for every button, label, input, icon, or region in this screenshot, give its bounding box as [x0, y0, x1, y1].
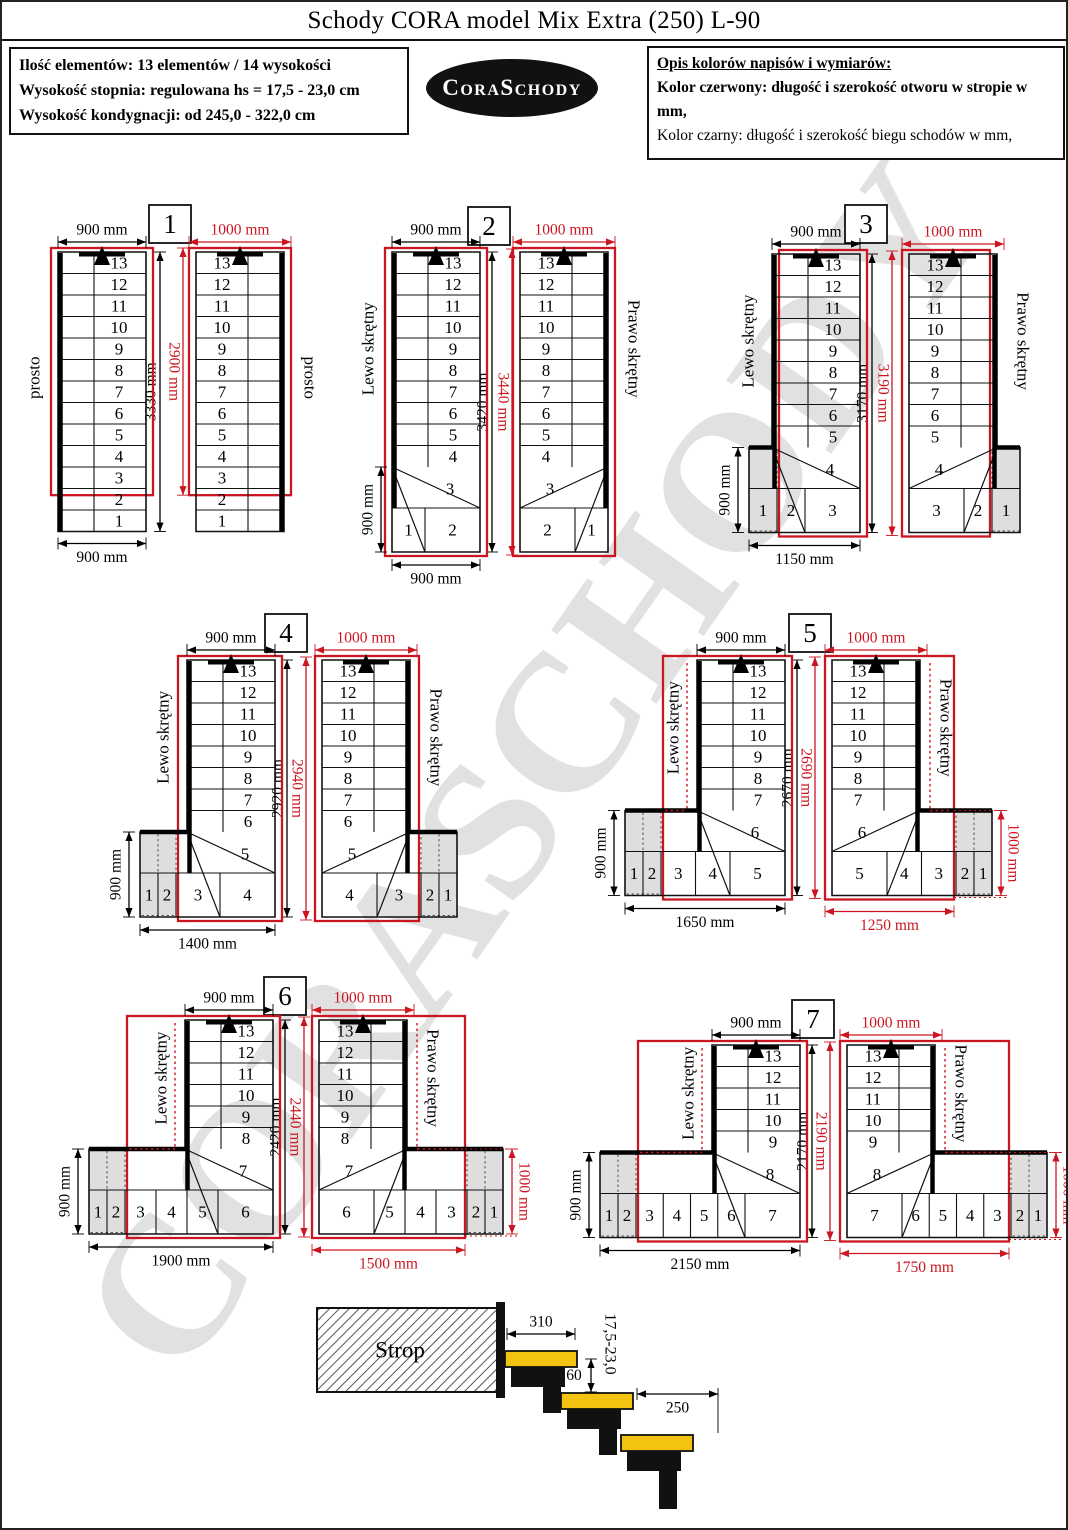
- step-post: [543, 1367, 561, 1413]
- dim-arrowhead: [1052, 1229, 1059, 1238]
- dim-label: 900 mm: [76, 222, 127, 239]
- step-number: 12: [111, 275, 128, 294]
- dim-arrowhead: [125, 832, 132, 841]
- dim-arrowhead: [471, 561, 480, 568]
- step-number: 12: [538, 275, 555, 294]
- step-number: 6: [344, 812, 353, 831]
- step-number: 9: [218, 339, 227, 358]
- side-label: Prawo skrętny: [424, 1029, 443, 1127]
- stair-outline: [196, 252, 284, 532]
- step-number: 2: [648, 864, 657, 883]
- step-number: 2: [472, 1203, 481, 1222]
- step-post: [599, 1409, 617, 1455]
- dim-arrowhead: [300, 1017, 307, 1026]
- step-number: 7: [218, 382, 227, 401]
- dim-arrowhead: [610, 887, 617, 896]
- step-number: 9: [754, 747, 763, 766]
- dim-label: 1650 mm: [676, 914, 735, 931]
- dim-arrowhead: [868, 524, 875, 533]
- step-number: 1: [444, 886, 453, 905]
- dim-arrowhead: [697, 646, 706, 653]
- dim-label: 310: [529, 1314, 553, 1331]
- step-number: 11: [825, 298, 841, 317]
- dim-arrowhead: [125, 908, 132, 917]
- dim-arrowhead: [302, 911, 309, 920]
- dim-arrowhead: [300, 1228, 307, 1237]
- dim-arrowhead: [918, 646, 927, 653]
- step-number: 4: [115, 447, 124, 466]
- dim-arrowhead: [945, 908, 954, 915]
- step-number: 10: [765, 1111, 782, 1130]
- step-number: 9: [769, 1132, 778, 1151]
- step-number: 5: [542, 425, 551, 444]
- logo-text: CoraSchody: [442, 75, 582, 101]
- step-number: 9: [244, 747, 253, 766]
- step-number: 10: [337, 1086, 354, 1105]
- dim-arrowhead: [587, 1359, 594, 1368]
- step-number: 4: [416, 1203, 425, 1222]
- dim-arrowhead: [734, 448, 741, 457]
- step-number: 5: [855, 864, 864, 883]
- diagram-1: 13330 mm2900 mm: [143, 205, 192, 532]
- info-line-elements: Ilość elementów: 13 elementów / 14 wysok…: [19, 54, 399, 79]
- step-number: 1: [979, 864, 988, 883]
- dim-arrowhead: [600, 1247, 609, 1254]
- step-number: 8: [218, 361, 227, 380]
- strop-label: Strop: [375, 1338, 425, 1363]
- dim-label: 1750 mm: [895, 1259, 954, 1276]
- step-number: 10: [111, 318, 128, 337]
- stair-outline: [58, 252, 146, 532]
- step-number: 7: [829, 384, 838, 403]
- dim-arrowhead: [625, 905, 634, 912]
- step-number: 11: [240, 704, 256, 723]
- step-number: 4: [966, 1206, 975, 1225]
- step-number: 5: [385, 1203, 394, 1222]
- step-number: 11: [111, 296, 127, 315]
- step-number: 1: [630, 864, 639, 883]
- dim-arrowhead: [508, 1149, 515, 1158]
- dim-arrowhead: [888, 251, 895, 260]
- dim-arrowhead: [808, 1229, 815, 1238]
- dim-arrowhead: [488, 252, 495, 261]
- step-number: 4: [900, 864, 909, 883]
- step-number: 10: [927, 320, 944, 339]
- dim-label: 3190 mm: [875, 364, 892, 423]
- info-box: Ilość elementów: 13 elementów / 14 wysok…: [9, 47, 409, 135]
- step-number: 9: [242, 1107, 251, 1126]
- step-number: 7: [244, 790, 253, 809]
- step-number: 4: [709, 864, 718, 883]
- dim-label: 900 mm: [410, 222, 461, 239]
- dim-arrowhead: [89, 1243, 98, 1250]
- step-number: 2: [961, 864, 970, 883]
- step-number: 9: [869, 1132, 878, 1151]
- side-label: Lewo skrętny: [739, 294, 758, 388]
- step-number: 1: [404, 521, 413, 540]
- dim-arrowhead: [840, 1031, 849, 1038]
- side-label: Lewo skrętny: [679, 1046, 698, 1140]
- step-number: 7: [768, 1206, 777, 1225]
- dim-arrowhead: [851, 542, 860, 549]
- step-number: 4: [542, 447, 551, 466]
- step-number: 11: [750, 704, 766, 723]
- dim-arrowhead: [507, 1330, 516, 1337]
- dim-arrowhead: [826, 1042, 833, 1051]
- diagram-5-stair-left: 13121110987123456Lewo skrętny900 mm900 m…: [593, 630, 793, 932]
- step-number: 5: [829, 427, 838, 446]
- step-number: 1: [1002, 501, 1011, 520]
- dim-arrowhead: [58, 238, 67, 245]
- step-tread: [505, 1351, 577, 1367]
- legend-heading: Opis kolorów napisów i wymiarów:: [657, 52, 1055, 76]
- diagram-3-stair-left: 13121110987651234Lewo skrętny900 mm900 m…: [717, 224, 868, 569]
- step-number: 5: [198, 1203, 207, 1222]
- dim-arrowhead: [405, 1006, 414, 1013]
- opening-red-rect: [902, 250, 990, 537]
- dim-label: 900 mm: [593, 827, 610, 878]
- dim-arrowhead: [137, 540, 146, 547]
- step-number: 4: [345, 886, 354, 905]
- dim-label: 2670 mm: [780, 748, 797, 807]
- dim-label: 1000 mm: [337, 630, 396, 647]
- dim-label: 900 mm: [790, 224, 841, 241]
- cross-section: Strop3106017,5-23,0250: [317, 1302, 718, 1509]
- dim-arrowhead: [187, 646, 196, 653]
- step-number: 11: [337, 1064, 353, 1083]
- dim-arrowhead: [776, 905, 785, 912]
- dim-arrowhead: [825, 908, 834, 915]
- dim-arrowhead: [508, 1225, 515, 1234]
- diagram-7: 72170 mm2190 mm: [792, 1000, 836, 1241]
- step-number: 11: [340, 704, 356, 723]
- step-number: 1: [759, 501, 768, 520]
- step-number: 10: [240, 726, 257, 745]
- side-label: Prawo skrętny: [1014, 292, 1033, 390]
- dim-arrowhead: [179, 486, 186, 495]
- dim-label: 1250 mm: [860, 917, 919, 934]
- dim-label: 1000 mm: [1005, 824, 1022, 883]
- dim-label: 1000 mm: [924, 224, 983, 241]
- dim-arrowhead: [566, 1330, 575, 1337]
- step-number: 8: [115, 361, 124, 380]
- step-number: 4: [243, 886, 252, 905]
- step-number: 5: [939, 1206, 948, 1225]
- step-number: 11: [865, 1089, 881, 1108]
- step-number: 5: [115, 425, 124, 444]
- dim-label: 1000 mm: [535, 222, 594, 239]
- step-number: 11: [445, 296, 461, 315]
- opening-red-rect: [825, 656, 954, 900]
- step-number: 9: [854, 747, 863, 766]
- step-number: 2: [448, 521, 457, 540]
- step-number: 6: [218, 404, 227, 423]
- step-number: 8: [449, 361, 458, 380]
- step-number: 3: [645, 1206, 654, 1225]
- dim-label: 1000 mm: [211, 222, 270, 239]
- step-number: 4: [218, 447, 227, 466]
- dim-label: 60: [566, 1367, 582, 1384]
- dim-label: 1000 mm: [847, 630, 906, 647]
- step-number: 11: [238, 1064, 254, 1083]
- dim-arrowhead: [826, 1232, 833, 1241]
- step-number: 2: [1016, 1206, 1025, 1225]
- step-number: 11: [538, 296, 554, 315]
- dim-label: 1150 mm: [775, 551, 833, 568]
- dim-arrowhead: [840, 1250, 849, 1257]
- step-number: 10: [750, 726, 767, 745]
- step-post: [659, 1451, 677, 1509]
- dim-arrowhead: [137, 238, 146, 245]
- legend-box: Opis kolorów napisów i wymiarów: Kolor c…: [647, 46, 1065, 160]
- dim-arrowhead: [312, 1006, 321, 1013]
- step-number: 10: [825, 320, 842, 339]
- side-label: Lewo skrętny: [664, 681, 683, 775]
- step-number: 8: [829, 363, 838, 382]
- side-label: Prawo skrętny: [937, 679, 956, 777]
- step-number: 7: [870, 1206, 879, 1225]
- step-number: 3: [115, 468, 124, 487]
- step-number: 7: [854, 790, 863, 809]
- dim-label: 3170 mm: [855, 364, 872, 423]
- step-number: 12: [445, 275, 462, 294]
- diagram-6-stair-right: 13121110986543217Prawo skrętny1000 mm150…: [312, 990, 533, 1273]
- dim-arrowhead: [888, 527, 895, 536]
- dim-label: 2150 mm: [671, 1256, 730, 1273]
- step-number: 7: [449, 382, 458, 401]
- step-number: 5: [218, 425, 227, 444]
- step-number: 9: [449, 339, 458, 358]
- dim-arrowhead: [156, 252, 163, 261]
- dim-arrowhead: [281, 1225, 288, 1234]
- dim-arrowhead: [793, 660, 800, 669]
- step-number: 4: [449, 447, 458, 466]
- step-number: 1: [605, 1206, 614, 1225]
- step-number: 12: [238, 1043, 255, 1062]
- badge-number: 1: [163, 209, 177, 239]
- legend-black-line: Kolor czarny: długość i szerokość biegu …: [657, 124, 1055, 148]
- dim-arrowhead: [456, 1246, 465, 1253]
- opening-red-rect: [51, 248, 153, 495]
- step-number: 11: [850, 704, 866, 723]
- step-number: 1: [587, 521, 596, 540]
- step-number: 6: [449, 404, 458, 423]
- dim-arrowhead: [266, 926, 275, 933]
- step-number: 2: [112, 1203, 121, 1222]
- step-tread: [561, 1393, 633, 1409]
- dim-label: 900 mm: [108, 849, 125, 900]
- step-number: 8: [854, 769, 863, 788]
- side-label: Lewo skrętny: [152, 1031, 171, 1125]
- slab-edge-bar: [496, 1302, 505, 1398]
- opening-red-rect: [189, 248, 291, 495]
- dim-arrowhead: [264, 1243, 273, 1250]
- dim-label: 900 mm: [410, 571, 461, 588]
- dim-label: 1500 mm: [359, 1256, 418, 1273]
- step-number: 3: [447, 1203, 456, 1222]
- diagram-4-stair-left: 13121110987612345Lewo skrętny900 mm900 m…: [108, 630, 283, 953]
- step-number: 2: [543, 521, 552, 540]
- step-number: 2: [623, 1206, 632, 1225]
- dim-arrowhead: [185, 1006, 194, 1013]
- step-number: 1: [115, 511, 124, 530]
- dim-arrowhead: [392, 238, 401, 245]
- side-label: prosto: [25, 357, 44, 400]
- step-number: 11: [927, 298, 943, 317]
- step-number: 12: [340, 683, 357, 702]
- dim-arrowhead: [377, 467, 384, 476]
- step-number: 12: [865, 1068, 882, 1087]
- dim-label: 900 mm: [715, 630, 766, 647]
- dim-arrowhead: [282, 238, 291, 245]
- step-number: 3: [935, 864, 944, 883]
- diagram-3-stair-right: 13121110987653214Prawo skrętny1000 mm: [902, 224, 1033, 537]
- step-number: 12: [927, 277, 944, 296]
- step-number: 3: [218, 468, 227, 487]
- dim-arrowhead: [281, 1020, 288, 1029]
- dim-arrowhead: [808, 1045, 815, 1054]
- info-line-storey-height: Wysokość kondygnacji: od 245,0 - 322,0 c…: [19, 104, 399, 129]
- step-number: 12: [825, 277, 842, 296]
- dim-arrowhead: [377, 543, 384, 552]
- step-number: 10: [340, 726, 357, 745]
- step-number: 7: [115, 382, 124, 401]
- badge-number: 3: [859, 209, 873, 239]
- badge-number: 6: [278, 981, 292, 1011]
- dim-label: 250: [666, 1400, 690, 1417]
- dim-label: 900 mm: [360, 484, 377, 535]
- step-number: 8: [341, 1129, 350, 1148]
- dim-arrowhead: [793, 887, 800, 896]
- step-number: 8: [931, 363, 940, 382]
- step-number: 12: [240, 683, 257, 702]
- step-number: 9: [931, 341, 940, 360]
- dim-label: 900 mm: [76, 549, 127, 566]
- dim-label: 2940 mm: [289, 759, 306, 818]
- step-number: 1: [145, 886, 154, 905]
- dim-arrowhead: [606, 238, 615, 245]
- step-number: 1: [490, 1203, 499, 1222]
- step-number: 5: [753, 864, 762, 883]
- step-number: 12: [765, 1068, 782, 1087]
- side-label: Lewo skrętny: [154, 690, 173, 784]
- step-number: 11: [214, 296, 230, 315]
- dim-label: 3330 mm: [143, 362, 160, 421]
- dim-label: 900 mm: [717, 464, 734, 515]
- step-number: 8: [344, 769, 353, 788]
- diagram-2-stair-right: 13121110987654213Prawo skrętny1000 mm: [513, 222, 644, 557]
- dim-arrowhead: [749, 542, 758, 549]
- step-number: 8: [244, 769, 253, 788]
- step-number: 10: [214, 318, 231, 337]
- dim-arrowhead: [637, 1390, 646, 1397]
- diagram-1-stair-left: 13121110987654321prosto900 mm900 mm: [25, 222, 154, 567]
- dim-arrowhead: [997, 887, 1004, 896]
- step-number: 5: [449, 425, 458, 444]
- dim-label: 1000 mm: [516, 1162, 533, 1221]
- step-number: 3: [674, 864, 683, 883]
- dim-label: 2190 mm: [813, 1112, 830, 1171]
- dim-label: 2440 mm: [287, 1098, 304, 1157]
- badge-number: 4: [279, 618, 293, 648]
- step-number: 2: [426, 886, 435, 905]
- dim-label: 1000 mm: [862, 1015, 921, 1032]
- step-number: 6: [931, 406, 940, 425]
- dim-arrowhead: [1000, 1250, 1009, 1257]
- step-number: 9: [829, 341, 838, 360]
- diagram-2-stair-left: 13121110987654123Lewo skrętny900 mm900 m…: [359, 222, 488, 588]
- step-number: 10: [850, 726, 867, 745]
- step-number: 4: [167, 1203, 176, 1222]
- side-label: Lewo skrętny: [359, 302, 378, 396]
- dim-arrowhead: [868, 254, 875, 263]
- step-number: 10: [538, 318, 555, 337]
- diagram-1-stair-right: 13121110987654321prosto1000 mm: [189, 222, 320, 532]
- step-number: 9: [341, 1107, 350, 1126]
- dim-label: 2690 mm: [798, 748, 815, 807]
- side-label: Prawo skrętny: [427, 689, 446, 787]
- dim-arrowhead: [776, 646, 785, 653]
- diagram-6-stair-left: 13121110981234567Lewo skrętny900 mm900 m…: [57, 990, 281, 1270]
- step-number: 7: [542, 382, 551, 401]
- step-number: 2: [115, 490, 124, 509]
- page: CORASCHODY Schody CORA model Mix Extra (…: [0, 0, 1068, 1530]
- info-line-step-height: Wysokość stopnia: regulowana hs = 17,5 -…: [19, 79, 399, 104]
- step-number: 9: [115, 339, 124, 358]
- step-number: 12: [750, 683, 767, 702]
- dim-arrowhead: [772, 240, 781, 247]
- dim-arrowhead: [811, 890, 818, 899]
- step-number: 6: [829, 406, 838, 425]
- dim-arrowhead: [74, 1225, 81, 1234]
- step-number: 9: [344, 747, 353, 766]
- dim-arrowhead: [712, 1031, 721, 1038]
- dim-arrowhead: [997, 811, 1004, 820]
- step-number: 3: [136, 1203, 145, 1222]
- dim-arrowhead: [513, 238, 522, 245]
- step-number: 1: [1034, 1206, 1043, 1225]
- step-number: 11: [765, 1089, 781, 1108]
- step-number: 12: [850, 683, 867, 702]
- dim-arrowhead: [315, 646, 324, 653]
- step-number: 12: [214, 275, 231, 294]
- step-number: 2: [163, 886, 172, 905]
- dim-label: 1000 mm: [334, 990, 393, 1007]
- step-number: 7: [754, 790, 763, 809]
- diagram-7-stair-left: 13121110912345678Lewo skrętny900 mm900 m…: [568, 1015, 808, 1274]
- step-number: 3: [395, 886, 404, 905]
- step-number: 9: [542, 339, 551, 358]
- dim-arrowhead: [283, 660, 290, 669]
- step-number: 12: [337, 1043, 354, 1062]
- dim-arrowhead: [811, 657, 818, 666]
- step-number: 10: [238, 1086, 255, 1105]
- step-number: 7: [931, 384, 940, 403]
- dim-label: 900 mm: [730, 1015, 781, 1032]
- dim-arrowhead: [283, 908, 290, 917]
- step-number: 8: [754, 769, 763, 788]
- dim-label: 2900 mm: [166, 342, 183, 401]
- step-number: 4: [673, 1206, 682, 1225]
- dim-label: 1000 mm: [1060, 1166, 1068, 1225]
- dim-arrowhead: [1052, 1153, 1059, 1162]
- dim-arrowhead: [74, 1149, 81, 1158]
- dim-arrowhead: [408, 646, 417, 653]
- dim-arrowhead: [58, 540, 67, 547]
- step-number: 8: [242, 1129, 251, 1148]
- badge-number: 5: [803, 618, 817, 648]
- step-number: 5: [931, 427, 940, 446]
